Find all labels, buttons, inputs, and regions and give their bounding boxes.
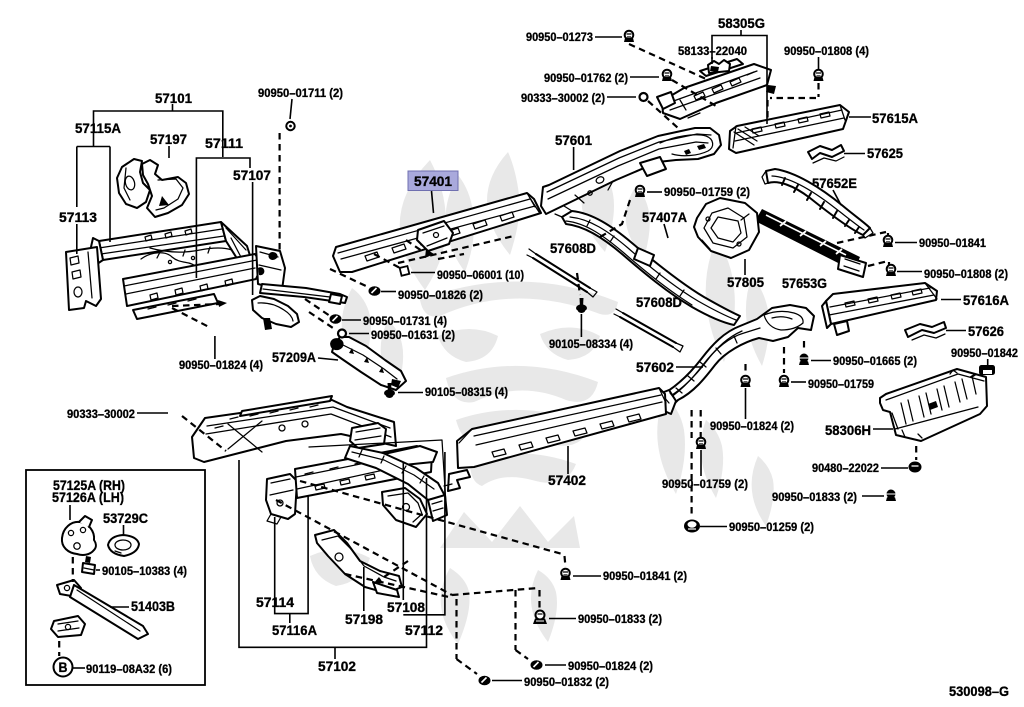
svg-text:90480–22022: 90480–22022	[812, 462, 879, 475]
svg-text:90950–01841: 90950–01841	[919, 237, 987, 250]
svg-text:57653G: 57653G	[782, 276, 827, 291]
svg-text:530098–G: 530098–G	[949, 684, 1009, 699]
svg-text:57407A: 57407A	[642, 210, 687, 225]
svg-text:57805: 57805	[727, 275, 764, 290]
svg-text:90950–01731 (4): 90950–01731 (4)	[363, 315, 447, 328]
svg-text:90950–01824 (2): 90950–01824 (2)	[710, 420, 794, 433]
svg-text:90105–10383 (4): 90105–10383 (4)	[102, 565, 187, 578]
svg-text:57116A: 57116A	[272, 623, 317, 638]
svg-text:57626: 57626	[968, 324, 1004, 339]
svg-text:53729C: 53729C	[103, 511, 148, 526]
svg-text:90105–08334 (4): 90105–08334 (4)	[549, 338, 633, 351]
svg-text:90119–08A32 (6): 90119–08A32 (6)	[86, 663, 172, 676]
svg-text:90333–30002 (2): 90333–30002 (2)	[521, 92, 605, 105]
svg-text:90950–01832 (2): 90950–01832 (2)	[524, 676, 609, 689]
svg-text:57108: 57108	[387, 600, 425, 615]
svg-text:57602: 57602	[636, 360, 674, 375]
svg-text:57111: 57111	[205, 136, 243, 151]
svg-text:90105–08315 (4): 90105–08315 (4)	[425, 386, 508, 399]
svg-text:90950–01808 (4): 90950–01808 (4)	[784, 45, 869, 58]
svg-text:57107: 57107	[233, 168, 271, 183]
svg-text:57113: 57113	[59, 210, 97, 225]
svg-text:90950–01808 (2): 90950–01808 (2)	[924, 268, 1008, 281]
svg-text:57608D: 57608D	[550, 241, 596, 256]
svg-text:57601: 57601	[555, 133, 592, 148]
svg-text:57616A: 57616A	[963, 293, 1009, 308]
svg-text:57197: 57197	[150, 132, 187, 147]
svg-text:58306H: 58306H	[825, 423, 871, 438]
svg-text:57401: 57401	[414, 174, 452, 189]
svg-text:90950–01665 (2): 90950–01665 (2)	[833, 355, 917, 368]
svg-text:90950–01824 (2): 90950–01824 (2)	[568, 660, 653, 673]
svg-text:57625: 57625	[867, 146, 903, 161]
svg-text:90950–01759 (2): 90950–01759 (2)	[662, 478, 748, 491]
svg-text:90950–01826 (2): 90950–01826 (2)	[398, 289, 483, 302]
svg-text:57198: 57198	[345, 612, 383, 627]
svg-text:57402: 57402	[548, 473, 586, 488]
svg-text:90950–01759 (2): 90950–01759 (2)	[664, 186, 750, 199]
svg-text:57126A (LH): 57126A (LH)	[52, 490, 124, 505]
svg-text:57102: 57102	[318, 659, 356, 674]
svg-text:57115A: 57115A	[75, 121, 121, 136]
svg-text:58305G: 58305G	[718, 16, 765, 31]
svg-text:57209A: 57209A	[272, 350, 316, 365]
svg-text:90950–01841 (2): 90950–01841 (2)	[603, 570, 687, 583]
svg-text:51403B: 51403B	[131, 599, 175, 614]
svg-text:57101: 57101	[155, 91, 192, 106]
svg-text:90950–01824 (4): 90950–01824 (4)	[179, 359, 263, 372]
svg-text:90950–01273: 90950–01273	[526, 31, 594, 44]
svg-text:90950–01759: 90950–01759	[808, 378, 875, 391]
svg-text:90950–01631 (2): 90950–01631 (2)	[371, 329, 455, 342]
svg-text:B: B	[59, 660, 68, 675]
svg-text:57615A: 57615A	[872, 111, 918, 126]
svg-text:57112: 57112	[405, 623, 443, 638]
svg-text:90950–01711 (2): 90950–01711 (2)	[258, 87, 343, 100]
svg-text:90950–06001 (10): 90950–06001 (10)	[437, 269, 524, 282]
svg-text:90950–01842: 90950–01842	[951, 347, 1018, 360]
svg-text:90950–01833 (2): 90950–01833 (2)	[772, 491, 857, 504]
svg-text:90950–01259 (2): 90950–01259 (2)	[729, 521, 814, 534]
svg-text:90333–30002: 90333–30002	[67, 408, 135, 421]
svg-text:90950–01762 (2): 90950–01762 (2)	[544, 72, 628, 85]
svg-text:90950–01833 (2): 90950–01833 (2)	[578, 613, 662, 626]
